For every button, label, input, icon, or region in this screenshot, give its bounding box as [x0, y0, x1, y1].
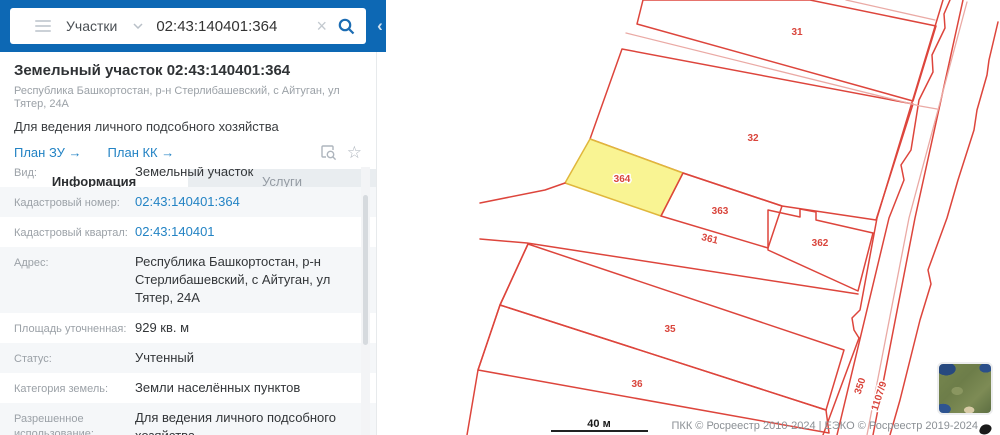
row-label: Категория земель: [14, 379, 135, 397]
parcel-label-363: 363 [712, 206, 729, 217]
attribute-rows: Вид: Земельный участок Кадастровый номер… [0, 167, 376, 435]
row-cadastral-quarter: Кадастровый квартал: 02:43:140401 [0, 217, 376, 247]
map-attribution: ПКК © Росреестр 2010-2024 | ЕЭКО © Росре… [672, 420, 979, 432]
parcel-361-upper-line [480, 183, 565, 203]
clear-search-icon[interactable]: × [310, 16, 333, 37]
parcel-362-outline[interactable] [768, 209, 873, 291]
road-corridor-line-2 [837, 0, 950, 435]
row-label: Кадастровый квартал: [14, 223, 135, 241]
cadastral-number-link[interactable]: 02:43:140401:364 [135, 193, 356, 211]
row-label: Кадастровый номер: [14, 193, 135, 211]
scale-bar-label: 40 м [587, 418, 610, 430]
satellite-layer-thumbnail[interactable] [937, 362, 993, 415]
panel-scrollbar-thumb[interactable] [363, 195, 368, 345]
parcel-label-1107-9: 1107/9 [870, 380, 890, 412]
parcel-31-outline[interactable] [637, 0, 936, 101]
collapse-panel-icon[interactable]: ‹ [375, 14, 385, 38]
area-search-icon[interactable] [320, 144, 337, 161]
favorite-star-icon[interactable]: ☆ [347, 145, 362, 161]
row-label: Адрес: [14, 253, 135, 307]
panel-header: Земельный участок 02:43:140401:364 Респу… [0, 52, 376, 169]
row-cadastral-number: Кадастровый номер: 02:43:140401:364 [0, 187, 376, 217]
parcel-address-subtitle: Республика Башкортостан, р-н Стерлибашев… [14, 85, 362, 111]
parcel-label-361: 361 [700, 232, 719, 247]
road-centerline-diagonal [626, 33, 937, 109]
parcel-label-350: 350 [853, 376, 869, 396]
row-label: Разрешенное использование: [14, 409, 135, 435]
parcel-usage-text: Для ведения личного подсобного хозяйства [14, 119, 362, 134]
row-value: Земельный участок [135, 167, 356, 181]
search-icon[interactable] [337, 17, 356, 36]
row-status: Статус: Учтенный [0, 343, 376, 373]
road-corridor-line-1 [823, 0, 943, 435]
parcel-label-364: 364 [614, 174, 631, 185]
row-kind: Вид: Земельный участок [0, 167, 376, 187]
search-input[interactable] [156, 18, 310, 35]
row-value: Учтенный [135, 349, 356, 367]
row-value: Земли населённых пунктов [135, 379, 356, 397]
search-box: Участки × [10, 8, 366, 44]
pkk-app: 31 32 364 363 361 362 35 36 350 1107/9 4… [0, 0, 1000, 435]
chevron-down-icon[interactable] [133, 23, 143, 29]
row-value: Республика Башкортостан, р-н Стерлибашев… [135, 253, 356, 307]
row-label: Статус: [14, 349, 135, 367]
parcel-label-35: 35 [664, 324, 676, 335]
plan-kk-link[interactable]: План КК → [108, 145, 175, 160]
row-address: Адрес: Республика Башкортостан, р-н Стер… [0, 247, 376, 313]
parcel-title: Земельный участок 02:43:140401:364 [14, 62, 362, 79]
row-land-category: Категория земель: Земли населённых пункт… [0, 373, 376, 403]
row-value: 929 кв. м [135, 319, 356, 337]
row-area: Площадь уточненная: 929 кв. м [0, 313, 376, 343]
menu-icon[interactable] [35, 20, 51, 32]
cadastral-map[interactable]: 31 32 364 363 361 362 35 36 350 1107/9 4… [377, 0, 1000, 435]
search-header-bar: Участки × ‹ [0, 0, 386, 52]
west-boundary-line [467, 244, 528, 435]
cadastral-quarter-link[interactable]: 02:43:140401 [135, 223, 356, 241]
plan-zu-link[interactable]: План ЗУ → [14, 145, 82, 160]
parcel-label-31: 31 [791, 27, 803, 38]
plan-links-row: План ЗУ → План КК → ☆ [14, 144, 362, 169]
parcel-label-362: 362 [812, 238, 829, 249]
parcel-label-36: 36 [631, 379, 643, 390]
parcel-info-panel: Земельный участок 02:43:140401:364 Респу… [0, 52, 377, 435]
header-action-icons: ☆ [320, 144, 362, 161]
search-category-select[interactable]: Участки [66, 18, 117, 34]
row-label: Вид: [14, 167, 135, 181]
row-label: Площадь уточненная: [14, 319, 135, 337]
parcel-36-outline[interactable] [478, 305, 829, 433]
row-value: Для ведения личного подсобного хозяйства [135, 409, 356, 435]
map-canvas: 31 32 364 363 361 362 35 36 350 1107/9 4… [377, 0, 1000, 435]
row-permitted-use: Разрешенное использование: Для ведения л… [0, 403, 376, 435]
parcel-label-32: 32 [747, 133, 759, 144]
